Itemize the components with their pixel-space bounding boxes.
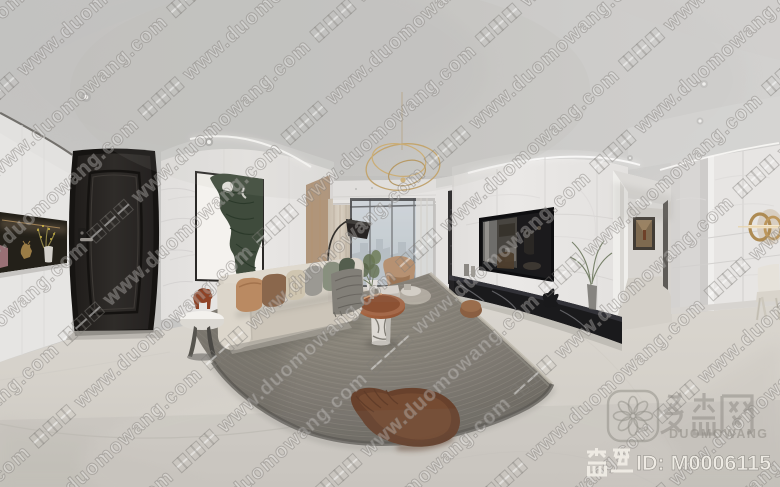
svg-text:ID: M0006115: ID: M0006115: [636, 451, 771, 475]
svg-text:DUOMOWANG: DUOMOWANG: [669, 427, 768, 441]
